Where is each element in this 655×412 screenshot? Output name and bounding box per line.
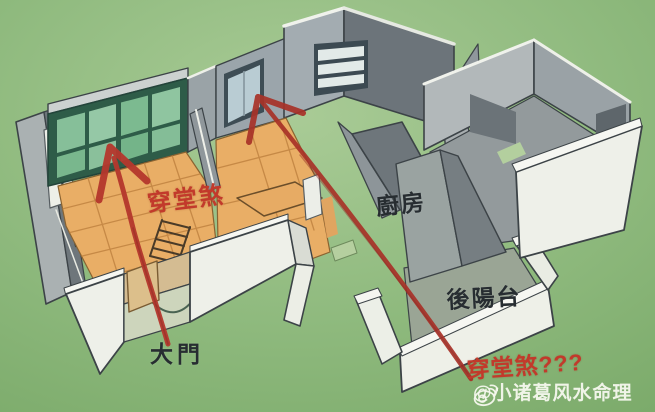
louver-window bbox=[314, 40, 368, 96]
feng-shui-diagram: 穿堂煞 廚房 後陽台 大門 穿堂煞??? @小诸葛风水命理 bbox=[0, 0, 655, 412]
watermark: @小诸葛风水命理 bbox=[473, 384, 633, 403]
weibo-icon bbox=[473, 384, 498, 407]
label-back-balcony: 後陽台 bbox=[446, 285, 522, 312]
label-main-door: 大門 bbox=[150, 343, 204, 366]
label-kitchen: 廚房 bbox=[375, 191, 427, 219]
